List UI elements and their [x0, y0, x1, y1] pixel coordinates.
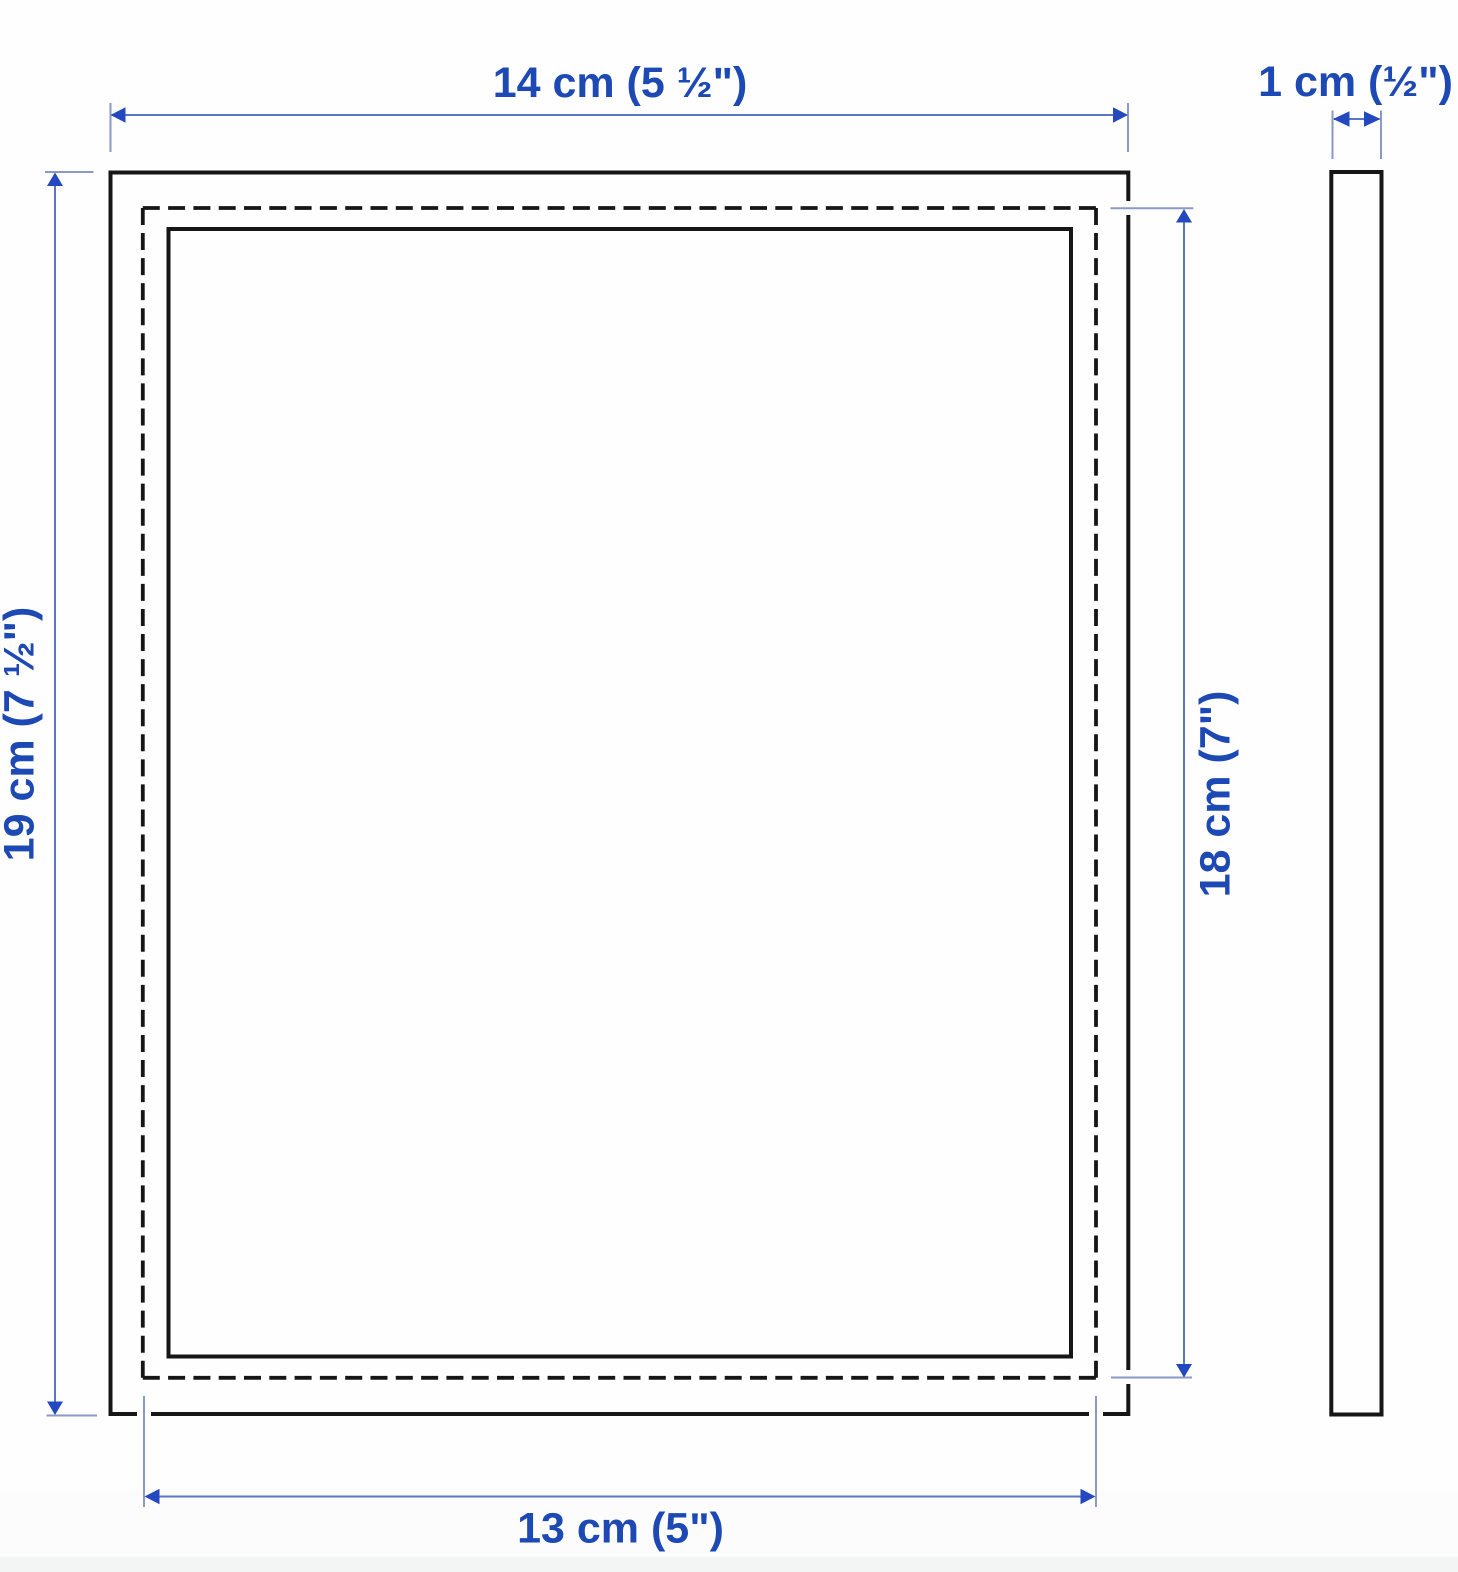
svg-text:18 cm (7"): 18 cm (7")	[1192, 691, 1240, 898]
svg-text:1 cm (½"): 1 cm (½")	[1258, 58, 1453, 106]
svg-text:14 cm (5 ½"): 14 cm (5 ½")	[493, 59, 748, 107]
svg-text:13 cm (5"): 13 cm (5")	[517, 1505, 724, 1553]
svg-text:19 cm (7 ½"): 19 cm (7 ½")	[0, 607, 44, 862]
